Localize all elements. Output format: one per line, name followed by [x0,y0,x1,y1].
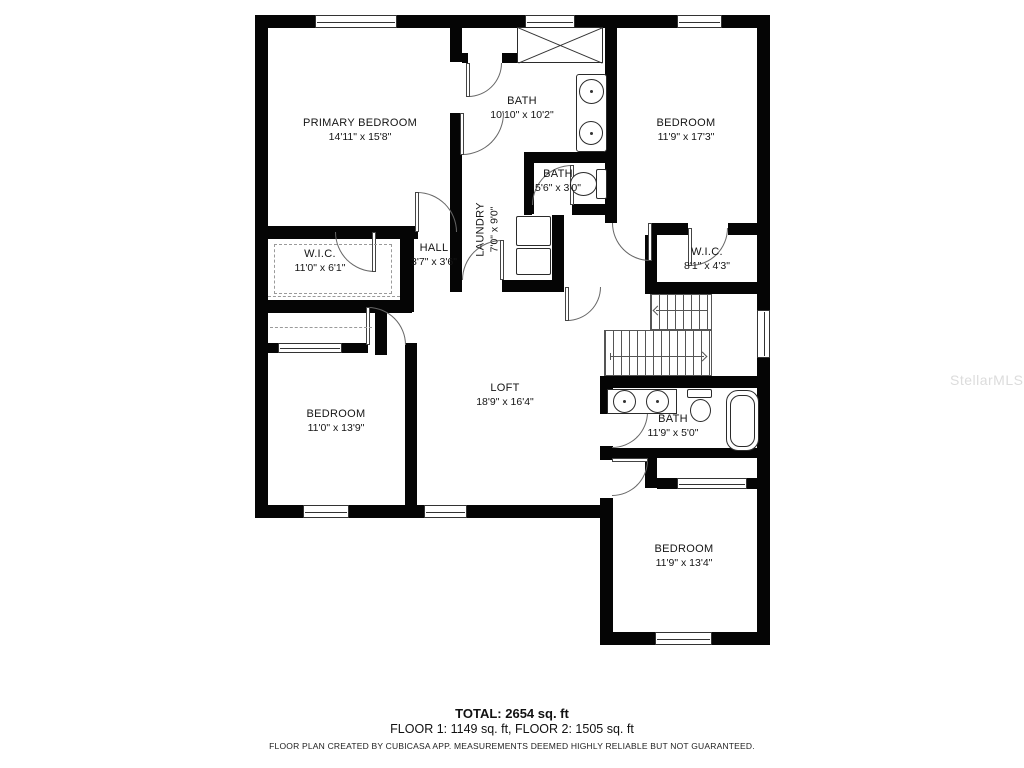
room-label-wic-left: W.I.C. 11'0" x 6'1" [270,248,370,275]
wall [524,152,617,163]
wall [747,478,758,489]
stairs-direction-line [656,310,708,311]
floor-plan: PRIMARY BEDROOM 14'11" x 15'8" BATH 10'1… [0,0,1024,768]
wall [728,223,758,235]
door-arc [468,63,502,97]
sliding-closet-door [677,478,747,489]
door-arc [567,287,601,321]
door-leaf [366,307,370,345]
stairs-direction-line [610,356,704,357]
wall [552,215,564,292]
door-leaf [415,192,419,232]
wall [342,343,368,353]
shower [517,27,603,63]
sink-drain [623,400,626,403]
stairs-lower-run [604,330,712,376]
room-label-bedroom-top-right: BEDROOM 11'9" x 17'3" [636,117,736,144]
room-label-wic-right: W.I.C. 8'1" x 4'3" [657,246,757,273]
door-arc [612,223,650,261]
bathtub-basin [730,395,755,447]
wall [600,376,758,388]
wall [405,343,417,518]
door-leaf [612,458,648,462]
total-area-text: TOTAL: 2654 sq. ft [0,706,1024,721]
closet-shelf-line [270,327,372,328]
window [655,632,712,645]
window [677,15,722,28]
room-label-bath-small: BATH 5'6" x 3'0" [518,168,598,195]
room-label-bedroom-bottom: BEDROOM 11'9" x 13'4" [634,543,734,570]
wall [657,478,677,489]
floor-areas-text: FLOOR 1: 1149 sq. ft, FLOOR 2: 1505 sq. … [0,722,1024,736]
sink-drain [590,90,593,93]
wall [255,343,278,353]
wall [462,53,468,63]
closet-shelf-line [268,296,400,297]
room-label-primary-bedroom: PRIMARY BEDROOM 14'11" x 15'8" [250,117,470,144]
watermark: StellarMLS [950,372,1023,388]
wall [645,282,758,294]
door-leaf [648,223,652,261]
wall [524,204,532,215]
wall [502,53,517,63]
door-leaf [565,287,569,321]
sink-drain [590,132,593,135]
door-arc [612,460,648,496]
room-label-laundry: LAUNDRY 7'0" x 9'0" [475,169,502,289]
washer [516,216,551,246]
door-leaf [466,63,470,97]
room-label-loft: LOFT 18'9" x 16'4" [455,382,555,409]
window [303,505,349,518]
wall [450,15,462,62]
toilet-tank [687,389,712,398]
stairs-arrow-start [610,353,611,360]
wall [650,223,688,235]
wall [600,498,613,638]
window [424,505,467,518]
sliding-closet-door [278,343,342,353]
room-label-bath-bottom: BATH 11'9" x 5'0" [628,413,718,440]
disclaimer-text: FLOOR PLAN CREATED BY CUBICASA APP. MEAS… [0,741,1024,751]
dryer [516,248,551,275]
window [757,310,770,358]
wall [255,15,268,518]
room-label-hall: HALL 3'7" x 3'6" [396,242,472,269]
room-label-bath-main: BATH 10'10" x 10'2" [467,95,577,122]
wall [255,300,412,313]
wall [450,280,462,292]
window [315,15,397,28]
sink-drain [656,400,659,403]
room-label-bedroom-left: BEDROOM 11'0" x 13'9" [286,408,386,435]
